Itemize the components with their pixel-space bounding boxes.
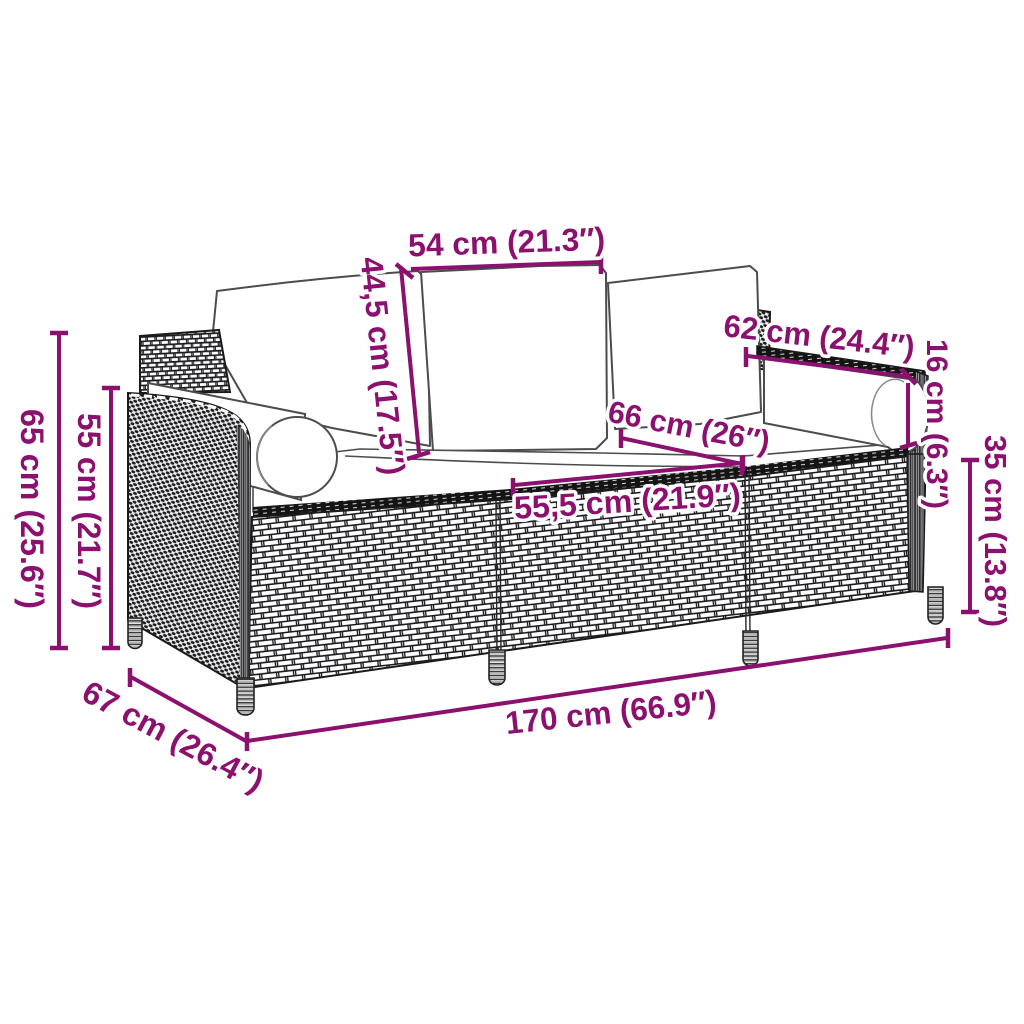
svg-text:55 cm (21.7″): 55 cm (21.7″)	[71, 413, 107, 609]
svg-text:65 cm (25.6″): 65 cm (25.6″)	[14, 409, 50, 609]
svg-text:35 cm (13.8″): 35 cm (13.8″)	[978, 435, 1013, 627]
svg-text:16 cm (6.3″): 16 cm (6.3″)	[920, 339, 953, 509]
svg-text:54 cm (21.3″): 54 cm (21.3″)	[408, 221, 606, 264]
